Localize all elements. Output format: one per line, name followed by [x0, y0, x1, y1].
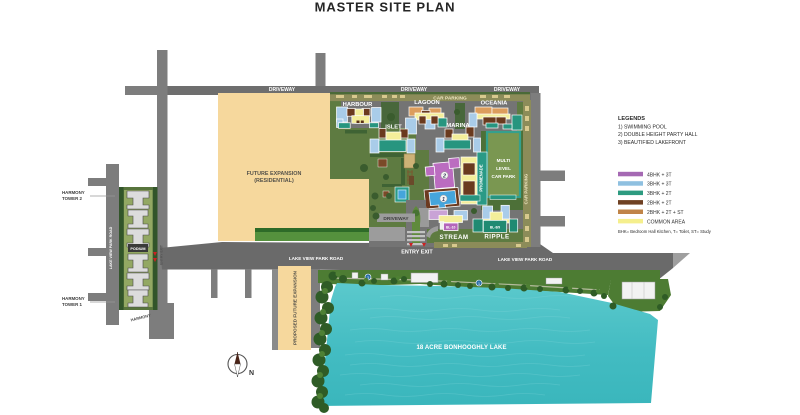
- svg-text:LEVEL: LEVEL: [496, 166, 511, 171]
- svg-text:COMMON AREA: COMMON AREA: [647, 219, 686, 225]
- svg-text:ISLET: ISLET: [385, 125, 402, 131]
- svg-text:OCEANIA: OCEANIA: [481, 101, 509, 107]
- svg-text:2BHK + 2T + ST: 2BHK + 2T + ST: [647, 210, 684, 216]
- svg-text:LAKE VIEW PARK ROAD: LAKE VIEW PARK ROAD: [109, 226, 113, 269]
- svg-text:PROPOSED FUTURE EXPANSION: PROPOSED FUTURE EXPANSION: [293, 270, 298, 345]
- svg-text:1: 1: [478, 282, 480, 286]
- svg-text:LAKE VIEW PARK ROAD: LAKE VIEW PARK ROAD: [289, 256, 344, 261]
- svg-text:ENTRY EXIT: ENTRY EXIT: [160, 244, 164, 265]
- svg-text:PODIUM: PODIUM: [130, 247, 145, 251]
- svg-text:CAR PARKING: CAR PARKING: [524, 173, 529, 204]
- svg-text:LEGENDS: LEGENDS: [618, 116, 645, 122]
- svg-text:3) BEAUTIFIED LAKEFRONT: 3) BEAUTIFIED LAKEFRONT: [618, 140, 686, 146]
- svg-text:DRIVEWAY: DRIVEWAY: [383, 216, 409, 222]
- svg-text:BL-8/9: BL-8/9: [490, 226, 500, 230]
- svg-text:2BHK + 2T: 2BHK + 2T: [647, 201, 672, 207]
- svg-text:MULTI: MULTI: [497, 158, 511, 163]
- svg-text:3BHK + 3T: 3BHK + 3T: [647, 182, 672, 188]
- svg-text:1: 1: [442, 197, 445, 203]
- svg-text:DRIVEWAY: DRIVEWAY: [401, 87, 428, 93]
- svg-text:18 ACRE BONHOOGHLY LAKE: 18 ACRE BONHOOGHLY LAKE: [416, 345, 506, 351]
- svg-text:HARBOUR: HARBOUR: [343, 102, 373, 108]
- svg-text:(RESIDENTIAL): (RESIDENTIAL): [254, 178, 294, 184]
- svg-text:MARINA: MARINA: [446, 123, 470, 129]
- svg-text:4BHK + 3T: 4BHK + 3T: [647, 172, 672, 178]
- svg-text:BHK= Bedroom Hall Kitchen, T=: BHK= Bedroom Hall Kitchen, T= Toilet, ST…: [618, 229, 712, 234]
- svg-text:HARMONY: HARMONY: [62, 296, 85, 301]
- svg-text:PROMENADE: PROMENADE: [479, 164, 484, 191]
- svg-text:STREAM: STREAM: [439, 234, 468, 241]
- svg-text:3BHK + 2T: 3BHK + 2T: [647, 191, 672, 197]
- svg-text:ENTRY EXIT: ENTRY EXIT: [401, 250, 433, 256]
- svg-text:1) SWIMMING POOL: 1) SWIMMING POOL: [618, 124, 667, 130]
- svg-text:TOWER 2: TOWER 2: [62, 196, 82, 201]
- svg-text:N: N: [249, 370, 254, 377]
- svg-text:CAR PARK: CAR PARK: [492, 174, 517, 179]
- svg-text:FUTURE EXPANSION: FUTURE EXPANSION: [247, 171, 302, 177]
- svg-text:2) DOUBLE HEIGHT PARTY HALL: 2) DOUBLE HEIGHT PARTY HALL: [618, 132, 698, 138]
- svg-text:LAGOON: LAGOON: [414, 100, 439, 106]
- svg-text:RIPPLE: RIPPLE: [484, 234, 509, 241]
- svg-text:MASTER SITE PLAN: MASTER SITE PLAN: [315, 0, 456, 15]
- svg-text:DRIVEWAY: DRIVEWAY: [494, 87, 521, 93]
- svg-text:HARMONY: HARMONY: [62, 190, 85, 195]
- svg-text:LAKE VIEW PARK ROAD: LAKE VIEW PARK ROAD: [498, 257, 553, 262]
- svg-text:2: 2: [442, 174, 446, 180]
- svg-text:DRIVEWAY: DRIVEWAY: [269, 87, 296, 93]
- svg-text:BL-10: BL-10: [446, 226, 456, 230]
- svg-text:TOWER 1: TOWER 1: [62, 302, 82, 307]
